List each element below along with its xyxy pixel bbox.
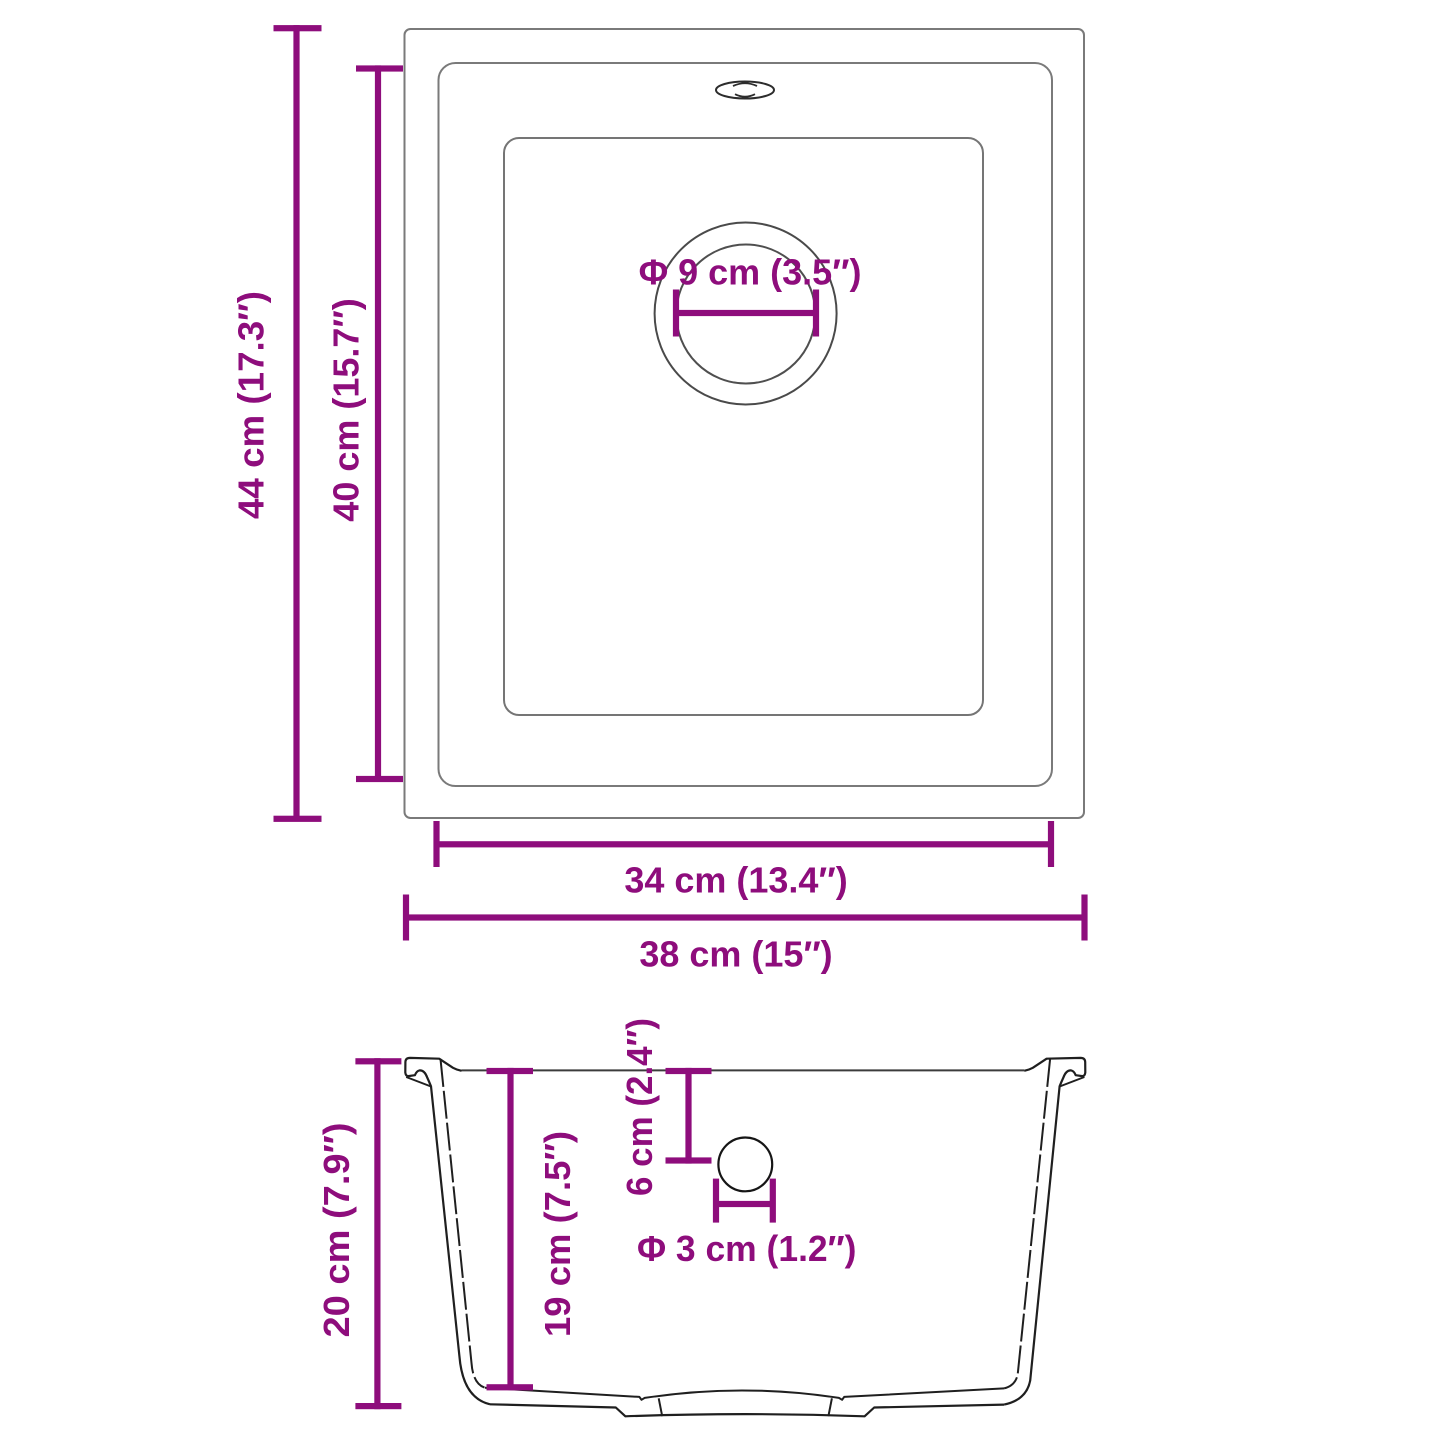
svg-text:19 cm (7.5″): 19 cm (7.5″): [537, 1131, 578, 1337]
svg-text:Φ 3 cm (1.2″): Φ 3 cm (1.2″): [637, 1228, 857, 1269]
svg-text:44 cm (17.3″): 44 cm (17.3″): [231, 291, 272, 519]
svg-text:34 cm (13.4″): 34 cm (13.4″): [624, 860, 847, 901]
svg-text:38 cm (15″): 38 cm (15″): [639, 934, 832, 975]
svg-text:6 cm (2.4″): 6 cm (2.4″): [619, 1018, 660, 1196]
svg-text:Φ 9 cm (3.5″): Φ 9 cm (3.5″): [639, 252, 862, 293]
svg-text:20 cm (7.9″): 20 cm (7.9″): [316, 1123, 357, 1338]
svg-text:40 cm (15.7″): 40 cm (15.7″): [326, 298, 367, 521]
